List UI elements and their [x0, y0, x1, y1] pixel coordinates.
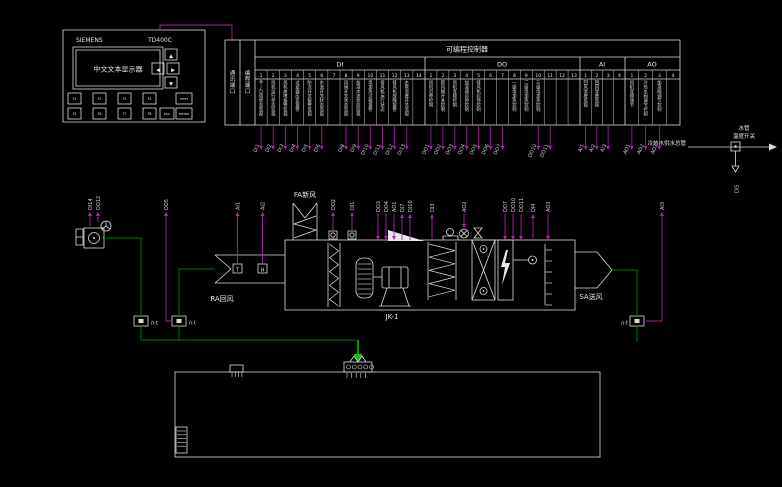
f3-label: F3	[123, 97, 127, 101]
col-number: 3	[284, 73, 287, 79]
signal-drop-label: DI4	[289, 143, 298, 153]
signal-drop-label: DI13	[397, 143, 407, 156]
shift-label: SHIFT	[180, 97, 189, 101]
col-number: 2	[272, 73, 275, 79]
tag-arrow-icon	[236, 212, 240, 216]
col-number: 8	[513, 73, 516, 79]
signal-drop-label: DI9	[349, 143, 358, 153]
col-number: 7	[501, 73, 504, 79]
plc-signal-drops: DI1DI2DI3DI4DI5DI6DI8DI9DI10DI11DI12DI13…	[252, 125, 661, 159]
col-number: 14	[416, 73, 422, 79]
diffuser-hole	[347, 365, 351, 369]
supply-airflow-arrow-icon	[354, 354, 363, 362]
tag-label: DO4	[384, 201, 390, 212]
signal-drop-label: DO1	[421, 143, 431, 155]
col-number: 6	[320, 73, 323, 79]
lightning-icon	[501, 250, 510, 285]
col-number: 4	[618, 73, 621, 79]
tag-label: DI14	[88, 198, 94, 210]
col-number: 7	[332, 73, 335, 79]
col-number: 11	[380, 73, 386, 79]
signal-drop-label: AI3	[600, 143, 609, 153]
coil-zigzag	[429, 244, 455, 297]
humidifier-spray-icon	[474, 228, 482, 238]
unit-label: JK-1	[385, 313, 399, 321]
col-number: 12	[392, 73, 398, 79]
col-number: 5	[308, 73, 311, 79]
col-number: 2	[644, 73, 647, 79]
io-point-label: 回风湿度监视	[595, 80, 600, 109]
col-number: 1	[430, 73, 433, 79]
col-number: 3	[453, 73, 456, 79]
io-point-label: 加湿器启停控制	[465, 79, 470, 113]
tag-arrow-icon	[376, 236, 380, 240]
nav-left-icon: ◀	[156, 68, 160, 74]
ahu-casing	[285, 240, 575, 310]
tag-arrow-icon	[660, 212, 664, 216]
plc-table-text: 可编程控制器 DI DO AI AO	[337, 45, 657, 69]
col-number: 4	[672, 73, 675, 79]
section-di: DI	[337, 61, 344, 69]
io-point-label: 水流开关状态监视	[320, 79, 325, 118]
signal-drop-label: DI8	[337, 143, 346, 153]
section-ao: AO	[647, 61, 656, 69]
col-number: 1	[584, 73, 587, 79]
ahu-unit	[285, 228, 575, 310]
ra-duct-label: RA回风	[210, 295, 233, 303]
tag-arrow-icon	[430, 214, 434, 218]
tag-arrow-icon	[331, 212, 335, 216]
col-number: 1	[260, 73, 263, 79]
tag-arrow-icon	[96, 212, 100, 216]
tag-arrow-icon	[503, 236, 507, 240]
io-point-label: 过滤器压差报警	[295, 79, 300, 113]
diagram-signal-tags: DI14DO12DO5AI1AI2DO2DI1DO3DO4AO1DI7DI10D…	[88, 184, 741, 321]
sensor-module-1-label: n:t	[151, 321, 158, 327]
io-point-label: 冷热水阀调节控制	[643, 79, 648, 118]
diagram-text: FA新风 RA回风 SA送风 JK-1	[210, 190, 602, 321]
coil-sensor	[447, 229, 454, 236]
io-point-label: 风阀开关状态监视	[344, 80, 349, 118]
col-number: 4	[465, 73, 468, 79]
io-point-label: 排风机故障报警	[392, 79, 397, 113]
tag-label: AI1	[236, 202, 242, 210]
col-number: 3	[607, 73, 610, 79]
nav-down-icon: ▼	[169, 82, 173, 88]
f2-label: F2	[98, 97, 102, 101]
io-point-label: 风机启停控制	[429, 80, 434, 109]
sensor-module-3-label: n:t	[621, 321, 628, 327]
pipe-switch-label-1: 水管	[738, 124, 750, 132]
signal-arrow-icon	[732, 166, 739, 172]
tag-label: DI1	[350, 201, 356, 210]
io-point-label: 风机变频控制	[453, 80, 458, 109]
exhaust-device	[76, 221, 111, 248]
tag-label: AO3	[546, 202, 552, 212]
signal-drop-label: DI3	[277, 143, 286, 153]
ahu-top-sensor-2	[348, 231, 356, 239]
io-point-label: 风机故障报警监视	[283, 80, 288, 118]
tag-arrow-icon	[164, 212, 168, 216]
f4-label: F4	[148, 97, 152, 101]
tag-label: AO2	[462, 202, 468, 212]
enter-label: ENTER	[179, 112, 189, 116]
signal-drop-label: AI1	[577, 143, 586, 153]
signal-drop-label: DI12	[385, 143, 395, 156]
col-number: 12	[559, 73, 565, 79]
tag-arrow-icon	[511, 236, 515, 240]
io-point-label: 三级电加热控制	[536, 80, 541, 113]
signal-drop-label: DI2	[264, 143, 273, 153]
io-point-label: 加湿水流状态监视	[356, 79, 361, 118]
section-do: DO	[497, 61, 507, 69]
signal-drop-label: DO11	[539, 143, 550, 158]
diffuser-hole	[370, 365, 374, 369]
tag-label: DO5	[164, 199, 170, 210]
signal-drop-label: DO4	[457, 143, 467, 155]
fa-damper-icon	[294, 216, 316, 238]
tag-label: AI3	[660, 202, 666, 210]
f1-label: F1	[73, 97, 77, 101]
io-point-label: 二级电加热控制	[524, 80, 529, 113]
col-number: 9	[525, 73, 528, 79]
water-pipe-assembly	[688, 142, 777, 172]
generated-details	[177, 244, 552, 446]
fa-fresh-air-duct	[293, 203, 317, 240]
tag-label: DI5	[735, 184, 741, 193]
section-ai: AI	[599, 61, 605, 69]
col-number: 6	[489, 73, 492, 79]
col-number: 13	[571, 73, 577, 79]
ra-return-duct	[215, 255, 285, 283]
tag-label: DO3	[376, 201, 382, 212]
tag-arrow-icon	[88, 212, 92, 216]
room-outline	[175, 372, 600, 457]
panel-model: TD400C	[147, 37, 172, 44]
io-point-label: 加湿阀调节控制	[657, 79, 662, 113]
nav-right-icon: ▶	[171, 68, 175, 74]
signal-drop-label: DI1	[252, 143, 261, 153]
io-point-label: 回风温度监视	[583, 80, 588, 109]
fan-belt-wedge-icon	[388, 230, 424, 241]
hvac-schematic: SIEMENS TD400C 中文文本显示器 ▲ ◀ ▶ ▼ F1 F2 F3 …	[0, 0, 782, 487]
pipe-switch-label-2: 温度开关	[733, 132, 756, 140]
tag-label: DI10	[408, 200, 414, 212]
col-number: 2	[595, 73, 598, 79]
io-point-label: 手/自动状态监视	[259, 79, 264, 118]
col-number: 5	[477, 73, 480, 79]
fan-motor	[382, 267, 408, 288]
sa-duct-label: SA送风	[579, 292, 602, 301]
tag-label: DI3	[430, 203, 436, 212]
signal-drop-label: AO2	[636, 143, 646, 155]
tag-label: DI4	[531, 203, 537, 212]
diffuser-hole	[352, 365, 356, 369]
io-point-label: 防冻开关报警监视	[307, 79, 312, 118]
io-point-label: 排风机运行状态	[380, 79, 385, 113]
col-number: 4	[296, 73, 299, 79]
tag-label: DO7	[503, 201, 509, 212]
signal-drop-label: DO5	[469, 143, 479, 155]
filter-zigzag	[330, 244, 339, 306]
nav-up-icon: ▲	[169, 54, 173, 60]
io-point-label: 水管温度开关监视	[405, 79, 410, 118]
signal-drop-label: DO10	[527, 143, 538, 158]
plc-column-grid: 1手/自动状态监视2风机运行状态监视3风机故障报警监视4过滤器压差报警5防冻开关…	[230, 57, 675, 125]
tag-arrow-icon	[519, 236, 523, 240]
signal-drop-label: DO2	[433, 143, 443, 155]
io-point-label: 排风机启停控制	[477, 79, 482, 113]
cad-canvas: SIEMENS TD400C 中文文本显示器 ▲ ◀ ▶ ▼ F1 F2 F3 …	[0, 0, 782, 487]
col-number: 8	[345, 73, 348, 79]
pipe-flow-arrow-icon	[769, 144, 777, 151]
panel-brand: SIEMENS	[76, 37, 103, 44]
col-number: 10	[367, 73, 373, 79]
sensor-module-2-label: n:t	[189, 321, 196, 327]
tag-arrow-icon	[400, 214, 404, 218]
tag-arrow-icon	[546, 236, 550, 240]
col-number: 1	[630, 73, 633, 79]
esc-label: ESC	[164, 112, 170, 116]
col-number: 10	[535, 73, 541, 79]
signal-drop-label: DO6	[481, 143, 491, 155]
f6-label: F6	[98, 112, 102, 116]
sa-supply-duct	[575, 252, 612, 288]
col-number: 3	[658, 73, 661, 79]
diffuser-hole	[358, 365, 362, 369]
signal-drop-label: DI11	[372, 143, 382, 156]
io-point-label: 风机运行状态监视	[271, 80, 276, 118]
tag-arrow-icon	[350, 212, 354, 216]
tag-label: DI7	[400, 203, 406, 212]
f7-label: F7	[123, 112, 127, 116]
f5-label: F5	[73, 112, 77, 116]
main-pipe-label: 冷热水供水总管	[647, 139, 686, 147]
tag-label: AI2	[261, 202, 267, 210]
col-number: 9	[357, 73, 360, 79]
room-fitting	[230, 365, 243, 372]
tag-label: AO1	[392, 202, 398, 212]
tag-arrow-icon	[384, 236, 388, 240]
signal-drop-label: DO3	[445, 143, 455, 155]
col-number: 2	[441, 73, 444, 79]
signal-drop-label: DI5	[301, 143, 310, 153]
fa-duct-label: FA新风	[294, 190, 316, 199]
col-number: 13	[404, 73, 410, 79]
signal-drop-label: AO1	[622, 143, 632, 155]
ra-humidity-sensor-glyph: H	[261, 268, 265, 274]
plc-title: 可编程控制器	[446, 45, 488, 54]
io-point-label: 电加热过载报警	[368, 79, 373, 113]
port-label: 通讯端口	[230, 69, 236, 95]
panel-display-text: 中文文本显示器	[94, 65, 143, 74]
io-point-label: 新风阀开关控制	[441, 79, 446, 113]
tag-label: DO10	[511, 198, 517, 212]
diffuser-hole	[364, 365, 368, 369]
ahu-top-sensor-1	[329, 231, 337, 239]
tag-label: DO2	[331, 199, 337, 210]
col-number: 11	[547, 73, 553, 79]
tag-label: DO11	[519, 198, 525, 212]
conditioned-room	[175, 356, 600, 457]
signal-drop-label: AI2	[588, 143, 597, 153]
tag-arrow-icon	[408, 214, 412, 218]
tag-arrow-icon	[261, 212, 265, 216]
signal-drop-label: DI10	[360, 143, 370, 156]
tag-label: DO12	[96, 196, 102, 210]
port-label: 编程端口	[245, 69, 251, 95]
tag-arrow-icon	[531, 214, 535, 218]
io-point-label: 风机变频调节	[630, 80, 635, 109]
tag-arrow-icon	[462, 224, 466, 228]
io-point-label: 一级电加热控制	[512, 81, 517, 113]
water-pipe-text: 冷热水供水总管 水管 温度开关	[647, 124, 755, 147]
signal-drop-label: DI6	[313, 143, 322, 153]
f8-label: F8	[148, 112, 152, 116]
signal-drop-label: DO7	[493, 143, 503, 155]
